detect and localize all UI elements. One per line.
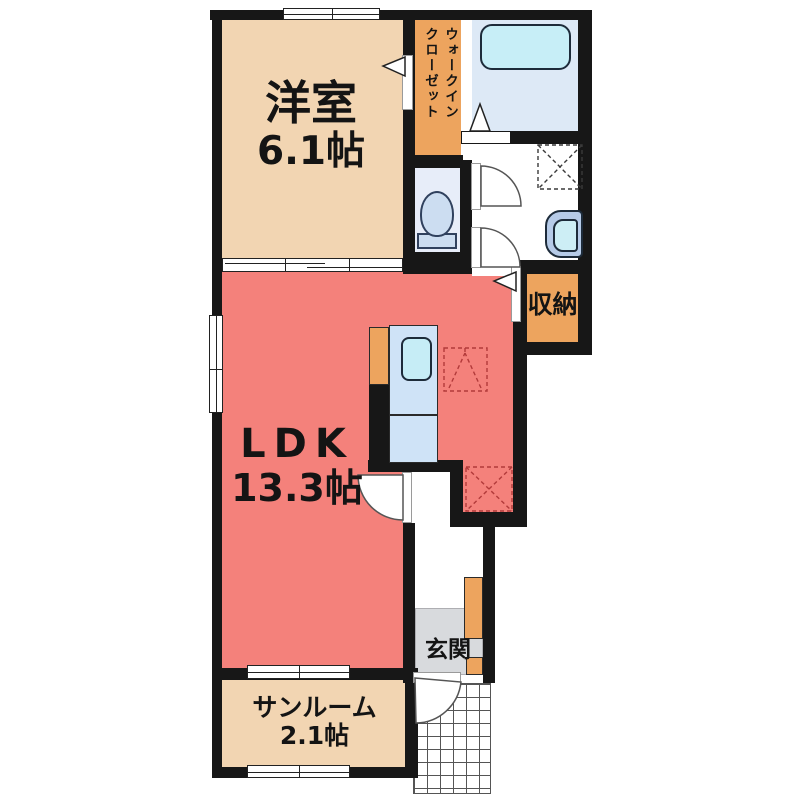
door-triangle-bath bbox=[470, 104, 490, 131]
label-western-room: 洋室 6.1帖 bbox=[228, 78, 394, 173]
door-arc-entrance bbox=[415, 678, 461, 723]
label-entrance: 玄関 bbox=[411, 638, 485, 664]
door-arc-toilet bbox=[481, 166, 521, 206]
door-triangle-wic bbox=[383, 57, 405, 76]
label-sunroom: サンルーム 2.1帖 bbox=[232, 694, 397, 750]
ldk-name: LDK bbox=[212, 422, 382, 467]
western-room-size: 6.1帖 bbox=[228, 130, 394, 174]
floor-space-symbol bbox=[466, 467, 512, 511]
label-walk-in-closet: ウォークイン クローゼット bbox=[414, 27, 460, 159]
sunroom-size: 2.1帖 bbox=[232, 722, 397, 750]
symbols-overlay bbox=[0, 0, 800, 800]
wic-line1: ウォークイン bbox=[440, 27, 460, 159]
floor-plan: 洋室 6.1帖 LDK 13.3帖 サンルーム 2.1帖 玄関 収納 ウォークイ… bbox=[0, 0, 800, 800]
door-arc-washroom bbox=[481, 228, 520, 267]
wic-line2: クローゼット bbox=[420, 27, 440, 159]
western-room-name: 洋室 bbox=[228, 78, 394, 130]
sunroom-name: サンルーム bbox=[232, 694, 397, 722]
washing-machine-symbol bbox=[538, 145, 582, 189]
label-ldk: LDK 13.3帖 bbox=[212, 422, 382, 509]
refrigerator-symbol bbox=[444, 348, 487, 391]
door-triangle-ldk-hall bbox=[494, 272, 516, 291]
ldk-size: 13.3帖 bbox=[212, 467, 382, 510]
label-storage: 収納 bbox=[525, 291, 580, 319]
